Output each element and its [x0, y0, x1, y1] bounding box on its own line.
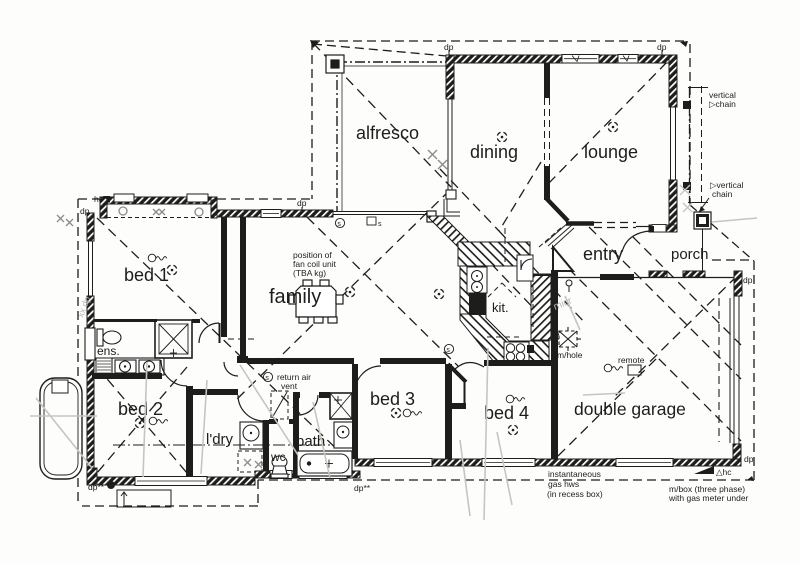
svg-text:vent: vent — [281, 381, 298, 391]
svg-text:lounge: lounge — [584, 142, 638, 162]
svg-text:bed 1: bed 1 — [124, 265, 169, 285]
svg-text:double garage: double garage — [574, 399, 686, 419]
svg-text:dining: dining — [470, 142, 518, 162]
svg-text:family: family — [269, 286, 321, 308]
svg-text:dp: dp — [297, 198, 307, 208]
svg-text:hc: hc — [94, 194, 104, 204]
svg-text:△hc: △hc — [716, 467, 732, 477]
svg-text:dp: dp — [744, 454, 754, 464]
svg-text:chain: chain — [712, 189, 733, 199]
svg-text:porch: porch — [671, 246, 709, 263]
svg-text:s: s — [265, 375, 269, 382]
svg-text:gas hws: gas hws — [548, 479, 579, 489]
svg-text:ens.: ens. — [97, 344, 120, 358]
svg-text:dp: dp — [80, 206, 90, 216]
svg-text:wc: wc — [270, 450, 286, 464]
svg-text:▷chain: ▷chain — [709, 99, 736, 109]
svg-text:(in recess box): (in recess box) — [547, 489, 603, 499]
svg-text:bed 2: bed 2 — [118, 399, 163, 419]
svg-text:with gas meter under: with gas meter under — [668, 493, 749, 503]
svg-text:(TBA kg): (TBA kg) — [293, 268, 326, 278]
svg-text:dp**: dp** — [354, 483, 371, 493]
svg-text:alfresco: alfresco — [356, 123, 419, 143]
svg-text:entry: entry — [583, 244, 623, 264]
svg-text:dp**: dp** — [88, 482, 105, 492]
svg-text:remote: remote — [618, 355, 645, 365]
svg-text:dp: dp — [743, 275, 753, 285]
svg-text:m/hole: m/hole — [557, 350, 583, 360]
svg-text:s: s — [446, 347, 450, 354]
svg-text:instantaneous: instantaneous — [548, 469, 601, 479]
svg-text:s: s — [337, 221, 341, 228]
svg-text:s: s — [378, 221, 382, 228]
svg-text:bed 4: bed 4 — [484, 403, 529, 423]
svg-text:kit.: kit. — [492, 300, 509, 315]
svg-text:bed 3: bed 3 — [370, 389, 415, 409]
